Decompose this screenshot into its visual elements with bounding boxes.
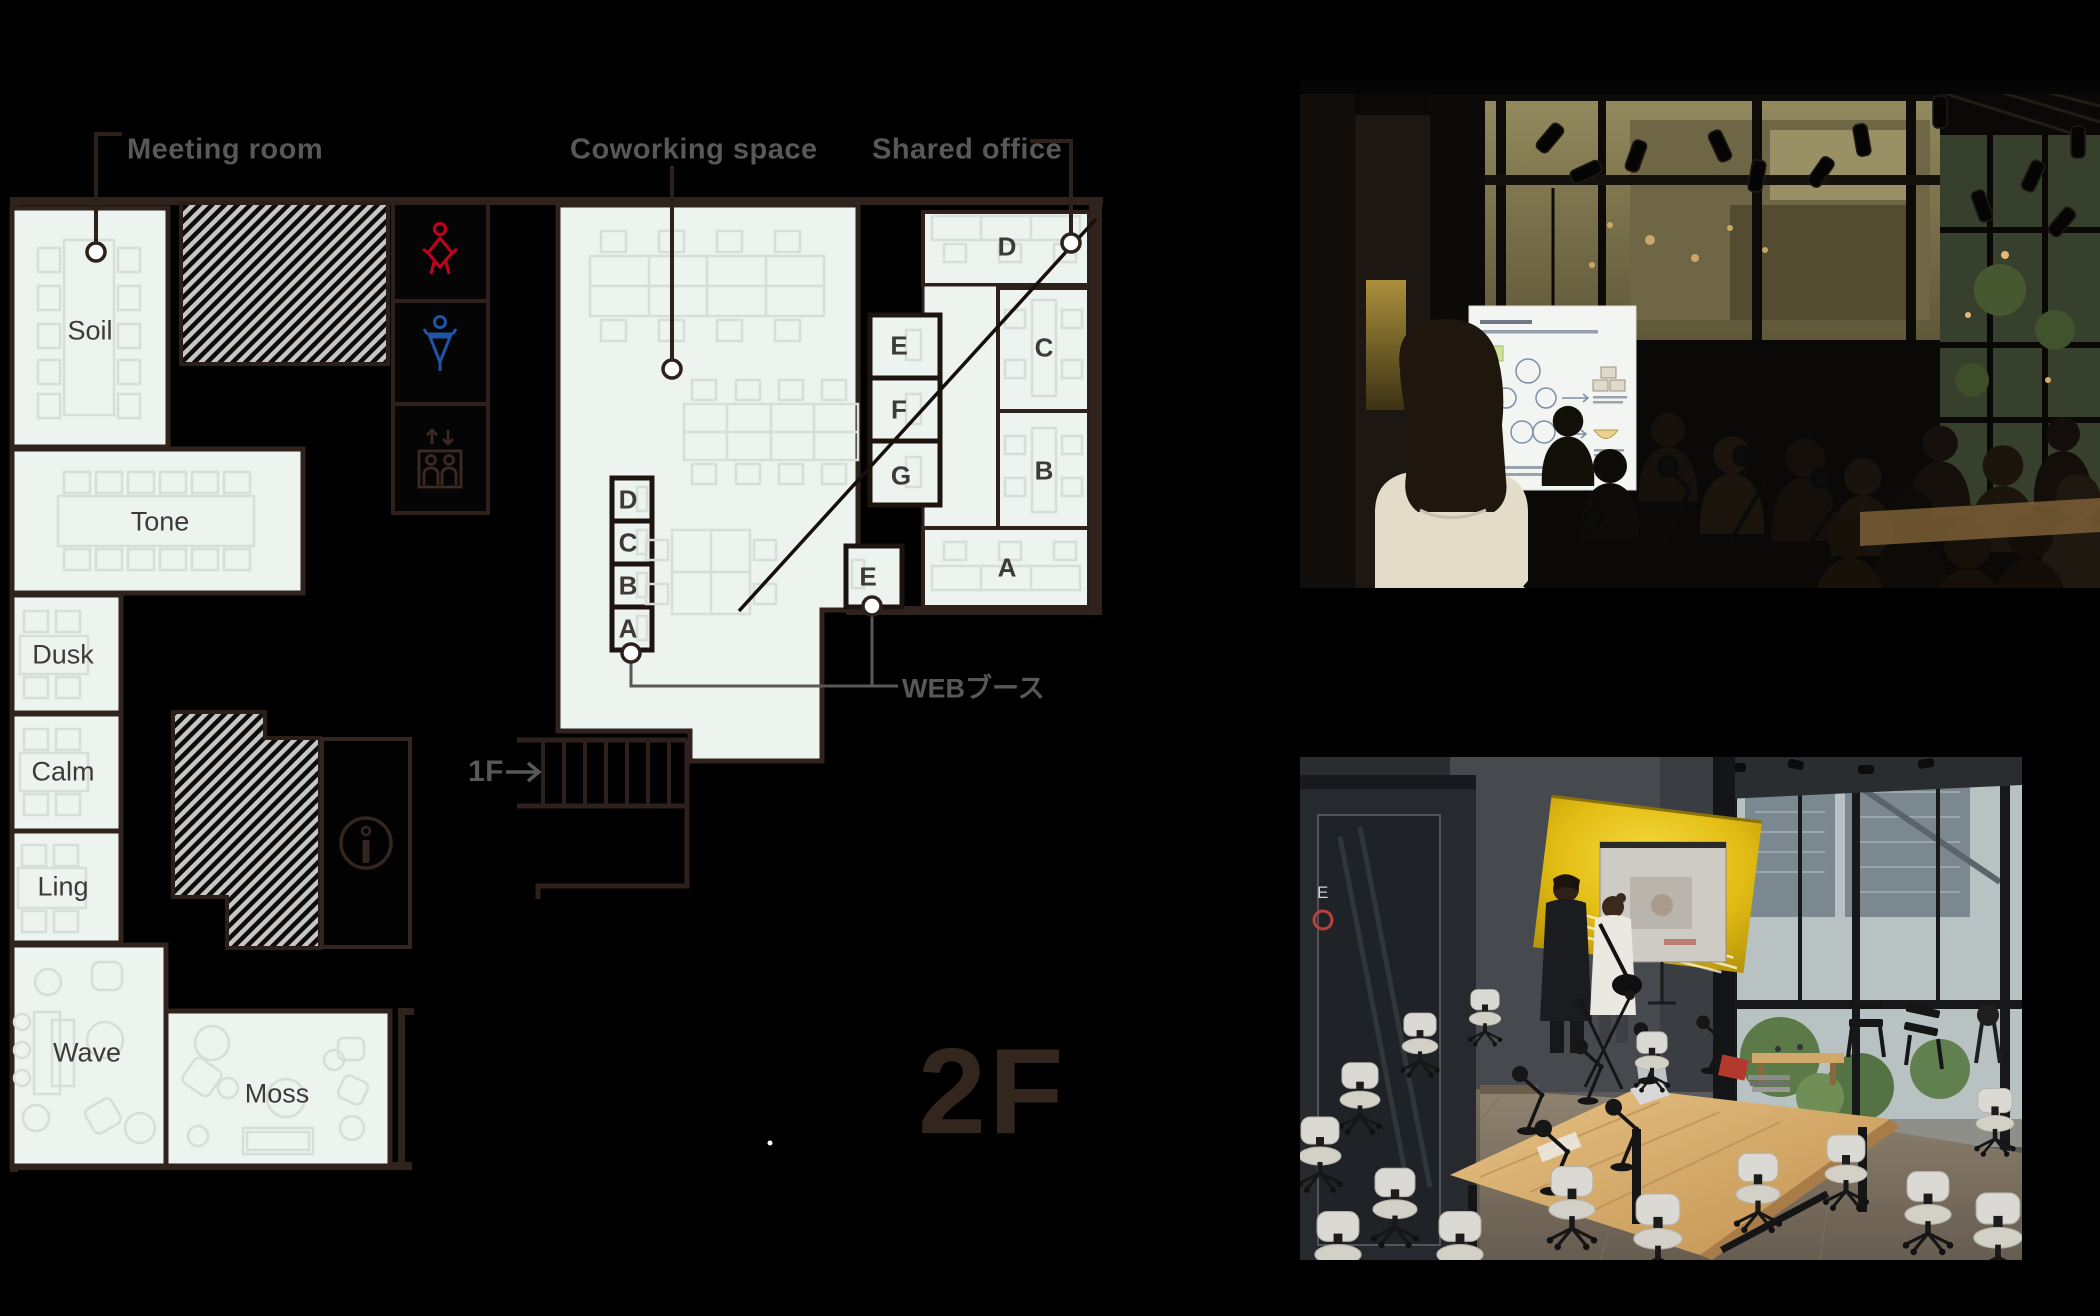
shared-office-label: Shared office <box>872 134 1062 167</box>
room-label-moss: Moss <box>245 1079 310 1110</box>
web-booth-b: B <box>619 571 638 602</box>
stairs-arrow-icon <box>506 763 539 781</box>
hatched-area-top <box>181 203 388 364</box>
shared-booth-g-label: G <box>891 461 911 492</box>
room-label-tone: Tone <box>131 507 190 538</box>
room-label-ling: Ling <box>37 872 88 903</box>
shared-office-rooms <box>923 212 1089 607</box>
room-label-calm: Calm <box>31 757 94 788</box>
hatched-area-bottom <box>173 712 320 948</box>
shared-room-b-label: B <box>1035 456 1054 487</box>
web-booth-d: D <box>619 485 638 516</box>
stairs <box>517 740 687 899</box>
shared-booth-e-label: E <box>890 331 907 362</box>
shared-room-d-label: D <box>998 232 1017 263</box>
page: Meeting room Coworking space Shared offi… <box>0 0 2100 1316</box>
shared-room-c-label: C <box>1035 333 1054 364</box>
booth-letter-label: E <box>1317 883 1328 902</box>
web-booth-e: E <box>859 562 876 593</box>
photo-meeting-room: E <box>1300 757 2022 1260</box>
photo-evening-seminar <box>1300 80 2100 588</box>
floor-number: 2F <box>918 1030 1066 1152</box>
stairs-label: 1F <box>468 755 504 789</box>
stray-dot <box>768 1141 773 1146</box>
web-booth-c: C <box>619 528 638 559</box>
web-booth-label: WEBブース <box>902 667 1045 706</box>
information-box <box>322 739 410 947</box>
coworking-label: Coworking space <box>570 134 818 167</box>
web-booth-a: A <box>619 614 638 645</box>
room-label-dusk: Dusk <box>32 640 94 671</box>
shared-room-a-label: A <box>998 553 1017 584</box>
meeting-room-label: Meeting room <box>127 134 323 167</box>
room-label-soil: Soil <box>67 316 112 347</box>
room-label-wave: Wave <box>53 1038 121 1069</box>
shared-booth-f-label: F <box>891 395 907 426</box>
